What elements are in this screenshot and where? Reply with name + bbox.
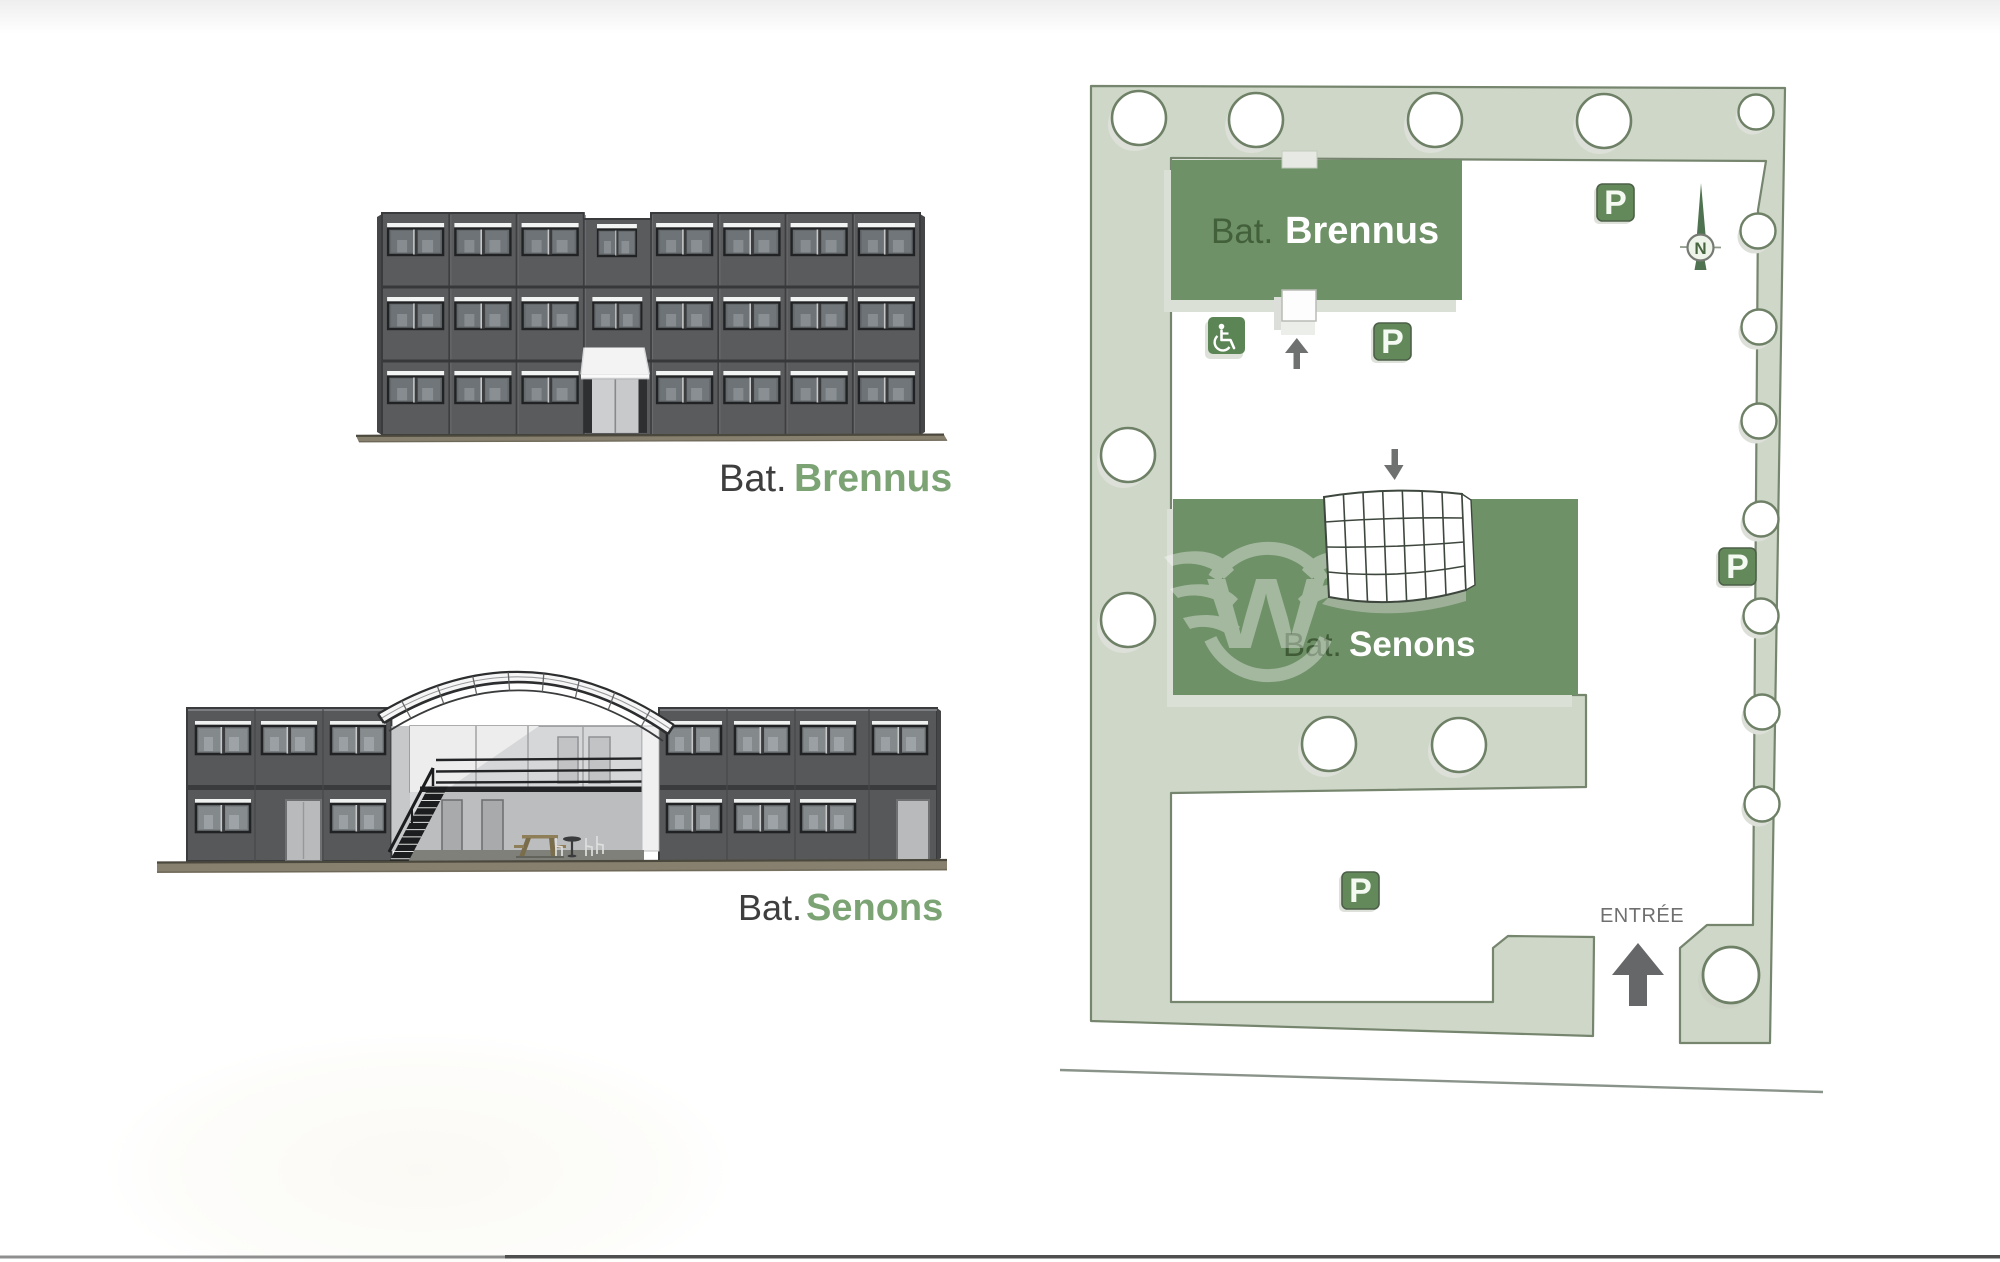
svg-text:Senons: Senons xyxy=(806,887,943,929)
svg-text:Brennus: Brennus xyxy=(1285,210,1439,252)
svg-text:Bat.: Bat. xyxy=(738,887,802,928)
svg-text:N: N xyxy=(1694,239,1706,258)
svg-text:Bat.: Bat. xyxy=(1211,212,1273,251)
svg-text:ENTRÉE: ENTRÉE xyxy=(1600,904,1684,927)
svg-text:Brennus: Brennus xyxy=(794,457,952,500)
svg-text:W: W xyxy=(1207,558,1325,669)
svg-text:Senons: Senons xyxy=(1349,625,1475,664)
svg-text:Bat.: Bat. xyxy=(719,458,787,500)
